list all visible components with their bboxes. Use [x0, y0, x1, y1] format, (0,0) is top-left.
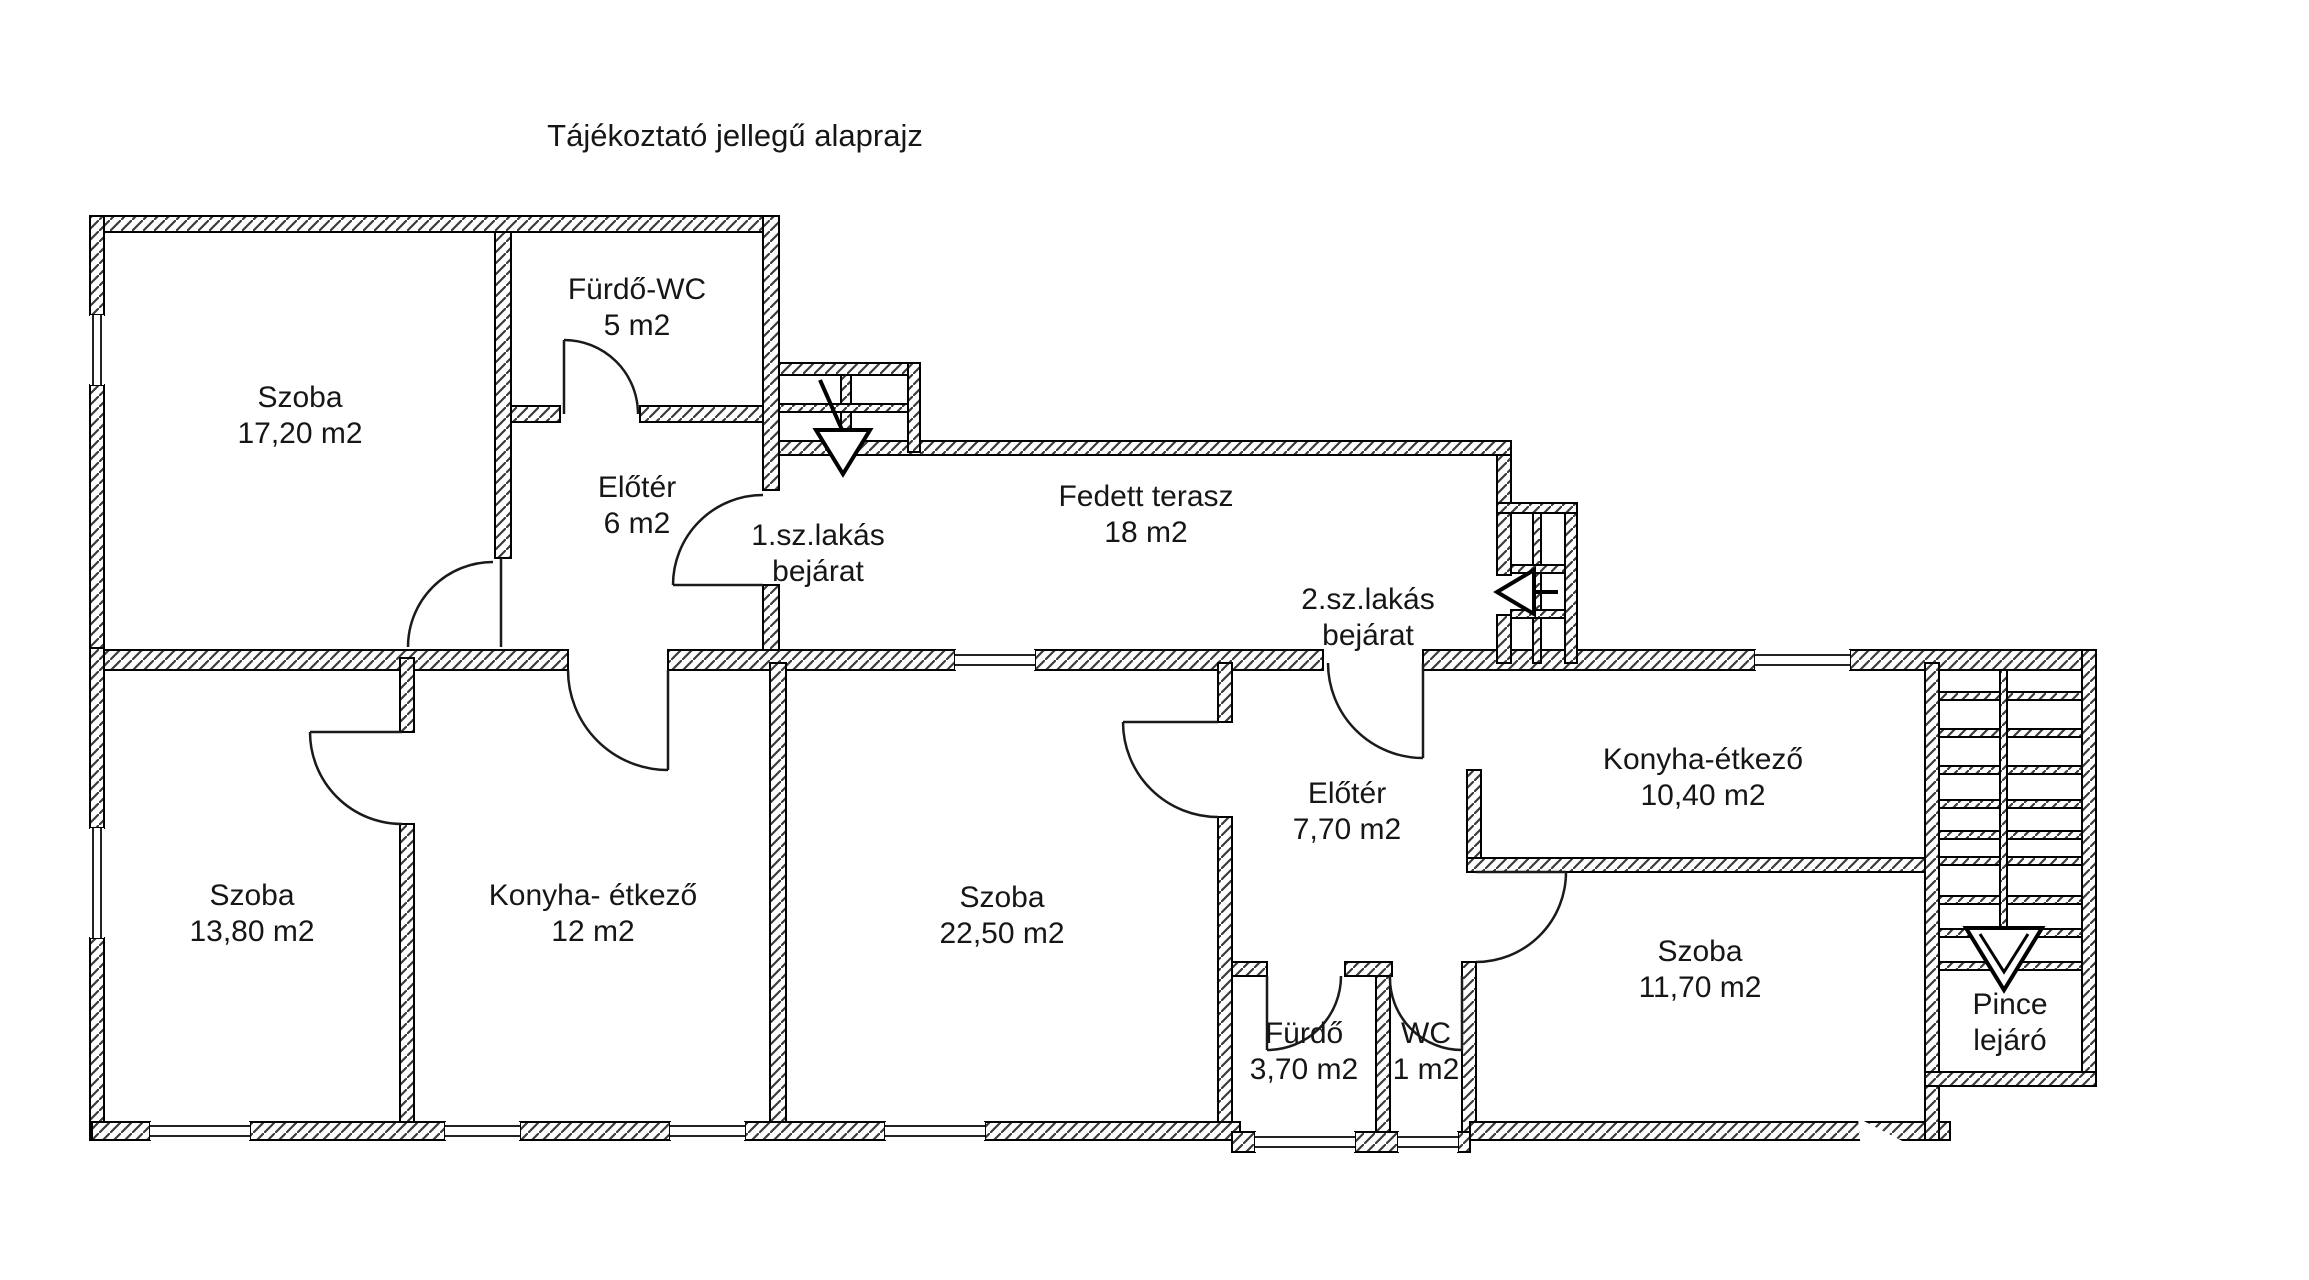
room-label-apt2-szoba-nagy: Szoba 22,50 m2	[939, 880, 1064, 952]
room-label-apt1-szoba-nagy: Szoba 17,20 m2	[237, 380, 362, 452]
room-label-pince-lejaro: Pince lejáró	[1972, 987, 2047, 1059]
page-title: Tájékoztató jellegű alaprajz	[547, 118, 923, 154]
room-label-apt1-konyha: Konyha- étkező 12 m2	[489, 878, 697, 950]
cellar-arrow-icon	[1966, 928, 2042, 990]
entry-arrow-apartment2-icon	[1497, 570, 1558, 614]
room-label-apt2-eloter: Előtér 7,70 m2	[1293, 776, 1401, 848]
room-label-apt1-szoba-kis: Szoba 13,80 m2	[189, 878, 314, 950]
room-label-apt2-konyha: Konyha-étkező 10,40 m2	[1603, 742, 1803, 814]
entrance-label-apartment2: 2.sz.lakás bejárat	[1301, 582, 1434, 654]
room-label-apt1-eloter: Előtér 6 m2	[598, 470, 676, 542]
floor-plan-drawing	[0, 0, 2309, 1280]
room-label-apt2-szoba-kis: Szoba 11,70 m2	[1639, 934, 1762, 1006]
walls	[90, 216, 2095, 1152]
page-title-text: Tájékoztató jellegű alaprajz	[547, 118, 923, 154]
floor-plan-page: Tájékoztató jellegű alaprajz Szoba 17,20…	[0, 0, 2309, 1280]
room-label-apt2-wc: WC 1 m2	[1393, 1016, 1460, 1088]
room-label-apt2-furdo: Fürdő 3,70 m2	[1250, 1016, 1358, 1088]
cellar-staircase	[1925, 650, 2096, 1140]
entrance-label-apartment1: 1.sz.lakás bejárat	[751, 518, 884, 590]
room-label-apt1-furdo-wc: Fürdő-WC 5 m2	[568, 272, 706, 344]
room-label-terasz: Fedett terasz 18 m2	[1058, 479, 1233, 551]
